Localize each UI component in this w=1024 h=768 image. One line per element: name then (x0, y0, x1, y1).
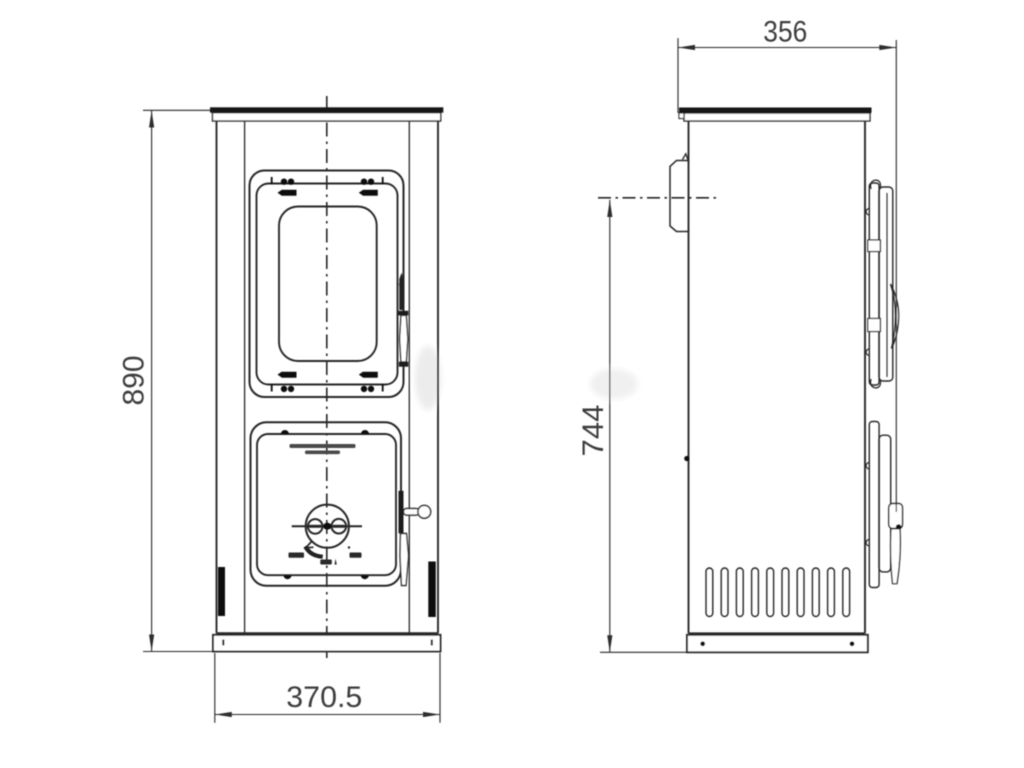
svg-text:356: 356 (763, 16, 807, 49)
svg-text:890: 890 (118, 356, 151, 406)
svg-text:744: 744 (577, 405, 610, 457)
svg-text:370.5: 370.5 (286, 681, 362, 714)
